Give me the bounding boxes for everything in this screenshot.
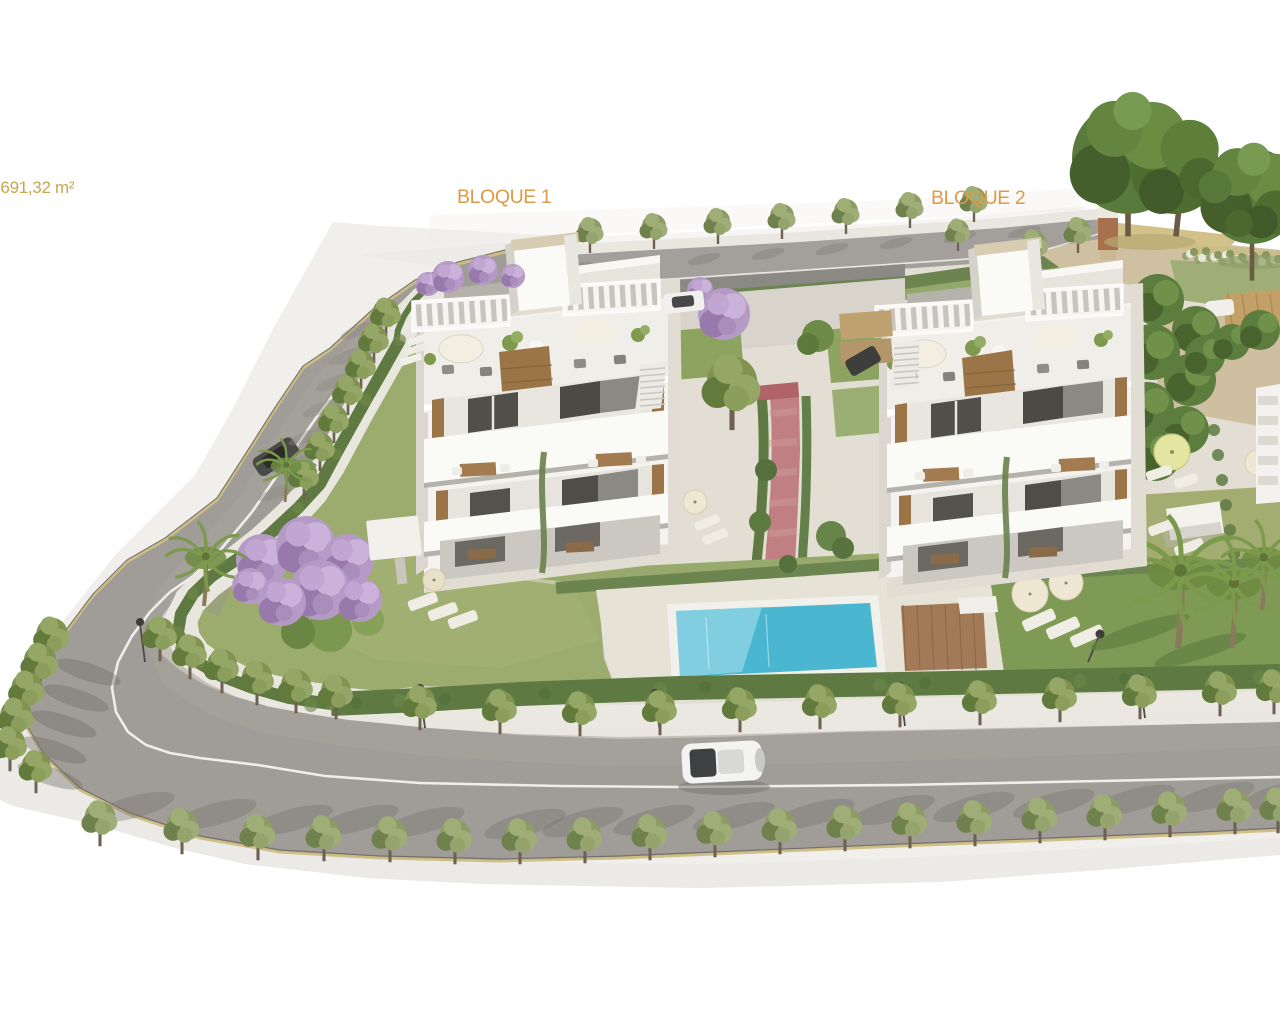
svg-text:.691,32 m²: .691,32 m²: [0, 178, 75, 197]
svg-text:BLOQUE 1: BLOQUE 1: [457, 186, 551, 208]
svg-text:BLOQUE 2: BLOQUE 2: [931, 187, 1025, 209]
